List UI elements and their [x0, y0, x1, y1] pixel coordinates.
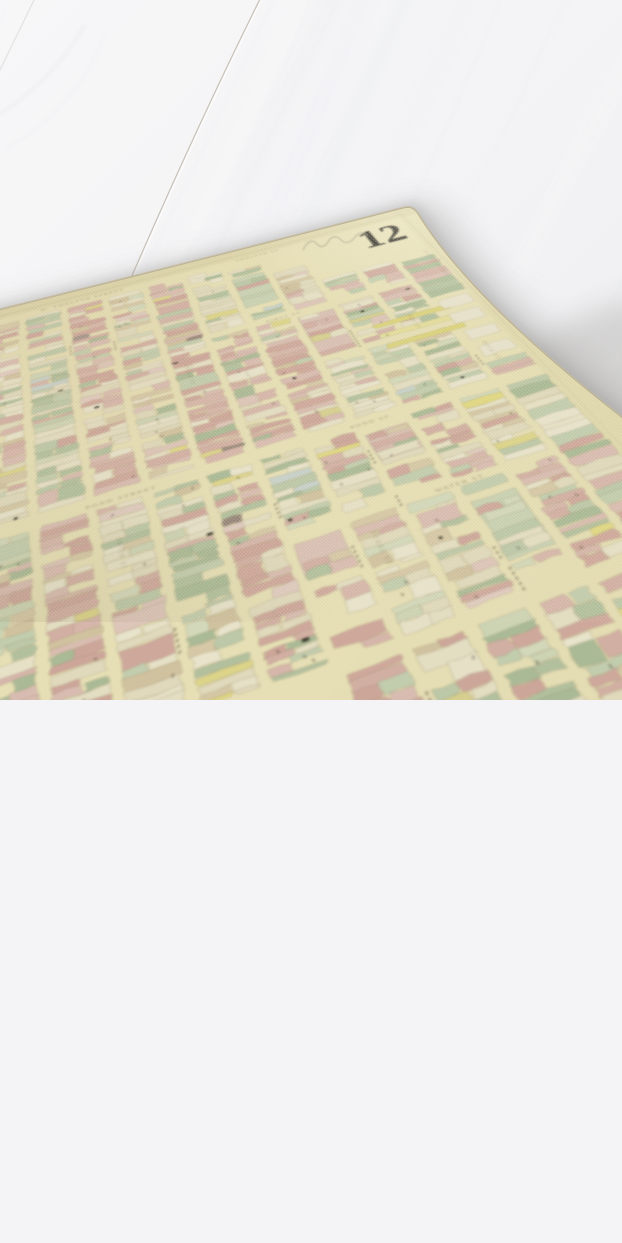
svg-text:FRONT STREET: FRONT STREET: [19, 742, 133, 794]
